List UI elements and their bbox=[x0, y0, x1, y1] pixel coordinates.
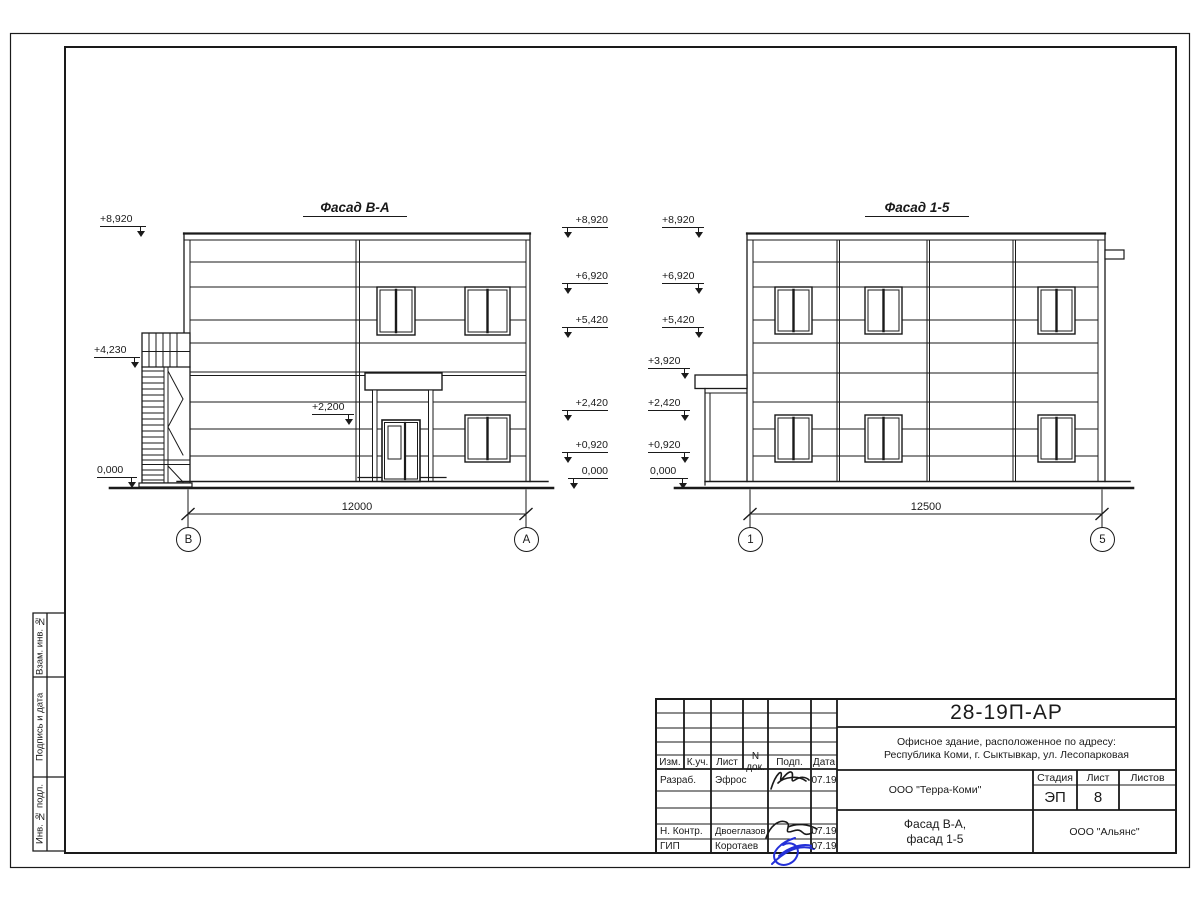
side-stamp-vzam: Взам. инв. № bbox=[33, 613, 47, 677]
signature-gip bbox=[772, 838, 814, 865]
elevation-mark: +2,420 bbox=[562, 398, 608, 411]
dimension-value-right: 12500 bbox=[876, 501, 976, 513]
project-description-line1: Офисное здание, расположенное по адресу: bbox=[897, 736, 1116, 749]
elevation-mark: +2,420 bbox=[648, 398, 690, 411]
row-gip-date: 07.19 bbox=[811, 839, 837, 853]
elevation-mark: +5,420 bbox=[662, 315, 704, 328]
elevation-mark: +8,920 bbox=[662, 215, 704, 228]
axis-bubble-a: А bbox=[514, 527, 539, 552]
sheets-value bbox=[1119, 785, 1176, 810]
elevation-mark: 0,000 bbox=[650, 466, 688, 479]
facade-right-title: Фасад 1-5 bbox=[865, 201, 969, 217]
document-code: 28-19П-АР bbox=[837, 699, 1176, 727]
row-gip-name: Коротаев bbox=[712, 839, 769, 853]
elevation-mark: 0,000 bbox=[568, 466, 608, 479]
row-gip-role: ГИП bbox=[657, 839, 712, 853]
elevation-mark: 0,000 bbox=[97, 465, 137, 478]
drawing-title-line2: фасад 1-5 bbox=[907, 832, 964, 847]
elevation-mark: +4,230 bbox=[94, 345, 140, 358]
facade-right-drawing bbox=[675, 233, 1133, 488]
row-developer-date: 07.19 bbox=[811, 769, 837, 791]
dimension-value-left: 12000 bbox=[307, 501, 407, 513]
facade-left-title: Фасад В-А bbox=[303, 201, 407, 217]
row-developer-name: Эфрос bbox=[712, 769, 769, 791]
elevation-mark: +6,920 bbox=[562, 271, 608, 284]
row-ncontrol-role: Н. Контр. bbox=[657, 824, 712, 839]
sheets-label: Листов bbox=[1119, 770, 1176, 785]
contractor-org: ООО "Альянс" bbox=[1033, 810, 1176, 853]
elevation-mark: +3,920 bbox=[648, 356, 690, 369]
side-stamp-podpis: Подпись и дата bbox=[33, 677, 47, 777]
side-stamp-inv: Инв. № подл. bbox=[33, 777, 47, 851]
row-developer-role: Разраб. bbox=[657, 769, 712, 791]
elevation-mark: +0,920 bbox=[648, 440, 690, 453]
col-ndoc: N док. bbox=[743, 755, 768, 769]
facade-left-drawing bbox=[110, 233, 553, 488]
col-izm: Изм. bbox=[656, 755, 684, 769]
col-list: Лист bbox=[711, 755, 743, 769]
axis-bubble-5: 5 bbox=[1090, 527, 1115, 552]
sheet-value: 8 bbox=[1077, 785, 1119, 810]
axis-bubble-1: 1 bbox=[738, 527, 763, 552]
stage-label: Стадия bbox=[1033, 770, 1077, 785]
elevation-mark-entrance: +2,200 bbox=[312, 402, 354, 415]
row-ncontrol-date: 07.19 bbox=[811, 824, 837, 839]
elevation-mark: +6,920 bbox=[662, 271, 704, 284]
col-data: Дата bbox=[811, 755, 837, 769]
signature-developer bbox=[771, 772, 809, 789]
project-description: Офисное здание, расположенное по адресу:… bbox=[837, 727, 1176, 770]
col-podp: Подп. bbox=[768, 755, 811, 769]
project-description-line2: Республика Коми, г. Сыктывкар, ул. Лесоп… bbox=[884, 749, 1129, 762]
elevation-mark: +5,420 bbox=[562, 315, 608, 328]
design-org: ООО "Терра-Коми" bbox=[837, 770, 1033, 810]
sheet-label: Лист bbox=[1077, 770, 1119, 785]
axis-bubble-v: В bbox=[176, 527, 201, 552]
elevation-mark: +8,920 bbox=[562, 215, 608, 228]
stage-value: ЭП bbox=[1033, 785, 1077, 810]
drawing-title: Фасад В-А, фасад 1-5 bbox=[837, 810, 1033, 853]
drawing-title-line1: Фасад В-А, bbox=[904, 817, 966, 832]
row-ncontrol-name: Двоеглазов bbox=[712, 824, 771, 839]
elevation-mark: +8,920 bbox=[100, 214, 146, 227]
drawing-sheet: Фасад В-А Фасад 1-5 +8,920 +4,230 0,000 … bbox=[0, 0, 1200, 900]
elevation-mark: +0,920 bbox=[562, 440, 608, 453]
col-kuch: К.уч. bbox=[684, 755, 711, 769]
